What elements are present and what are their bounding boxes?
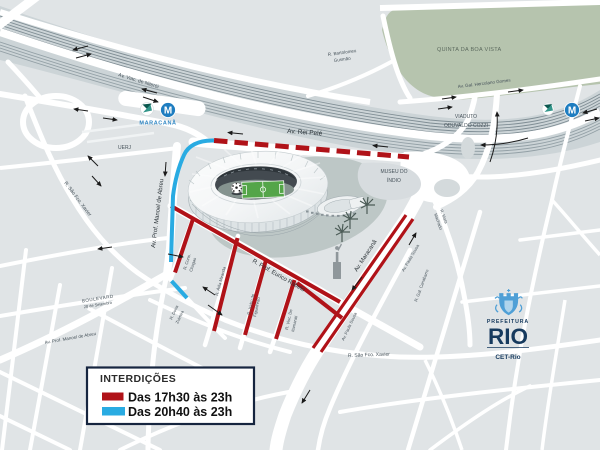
svg-text:M: M <box>568 106 576 117</box>
svg-text:M: M <box>164 106 172 117</box>
svg-text:Das 20h40 às 23h: Das 20h40 às 23h <box>128 405 232 419</box>
svg-text:MARACANÃ: MARACANÃ <box>139 120 176 127</box>
svg-text:VIADUTO: VIADUTO <box>455 114 477 120</box>
svg-text:CET-Rio: CET-Rio <box>495 354 520 361</box>
svg-text:ODUVALDO COZZI: ODUVALDO COZZI <box>444 123 488 129</box>
svg-text:ÍNDIO: ÍNDIO <box>387 177 401 184</box>
svg-text:MUSEU DO: MUSEU DO <box>381 169 408 175</box>
svg-text:UERJ: UERJ <box>118 145 132 151</box>
svg-text:QUINTA DA BOA VISTA: QUINTA DA BOA VISTA <box>437 47 502 53</box>
svg-text:Das 17h30 às 23h: Das 17h30 às 23h <box>128 391 232 405</box>
svg-text:RIO: RIO <box>488 324 528 349</box>
svg-text:INTERDIÇÕES: INTERDIÇÕES <box>100 372 176 385</box>
